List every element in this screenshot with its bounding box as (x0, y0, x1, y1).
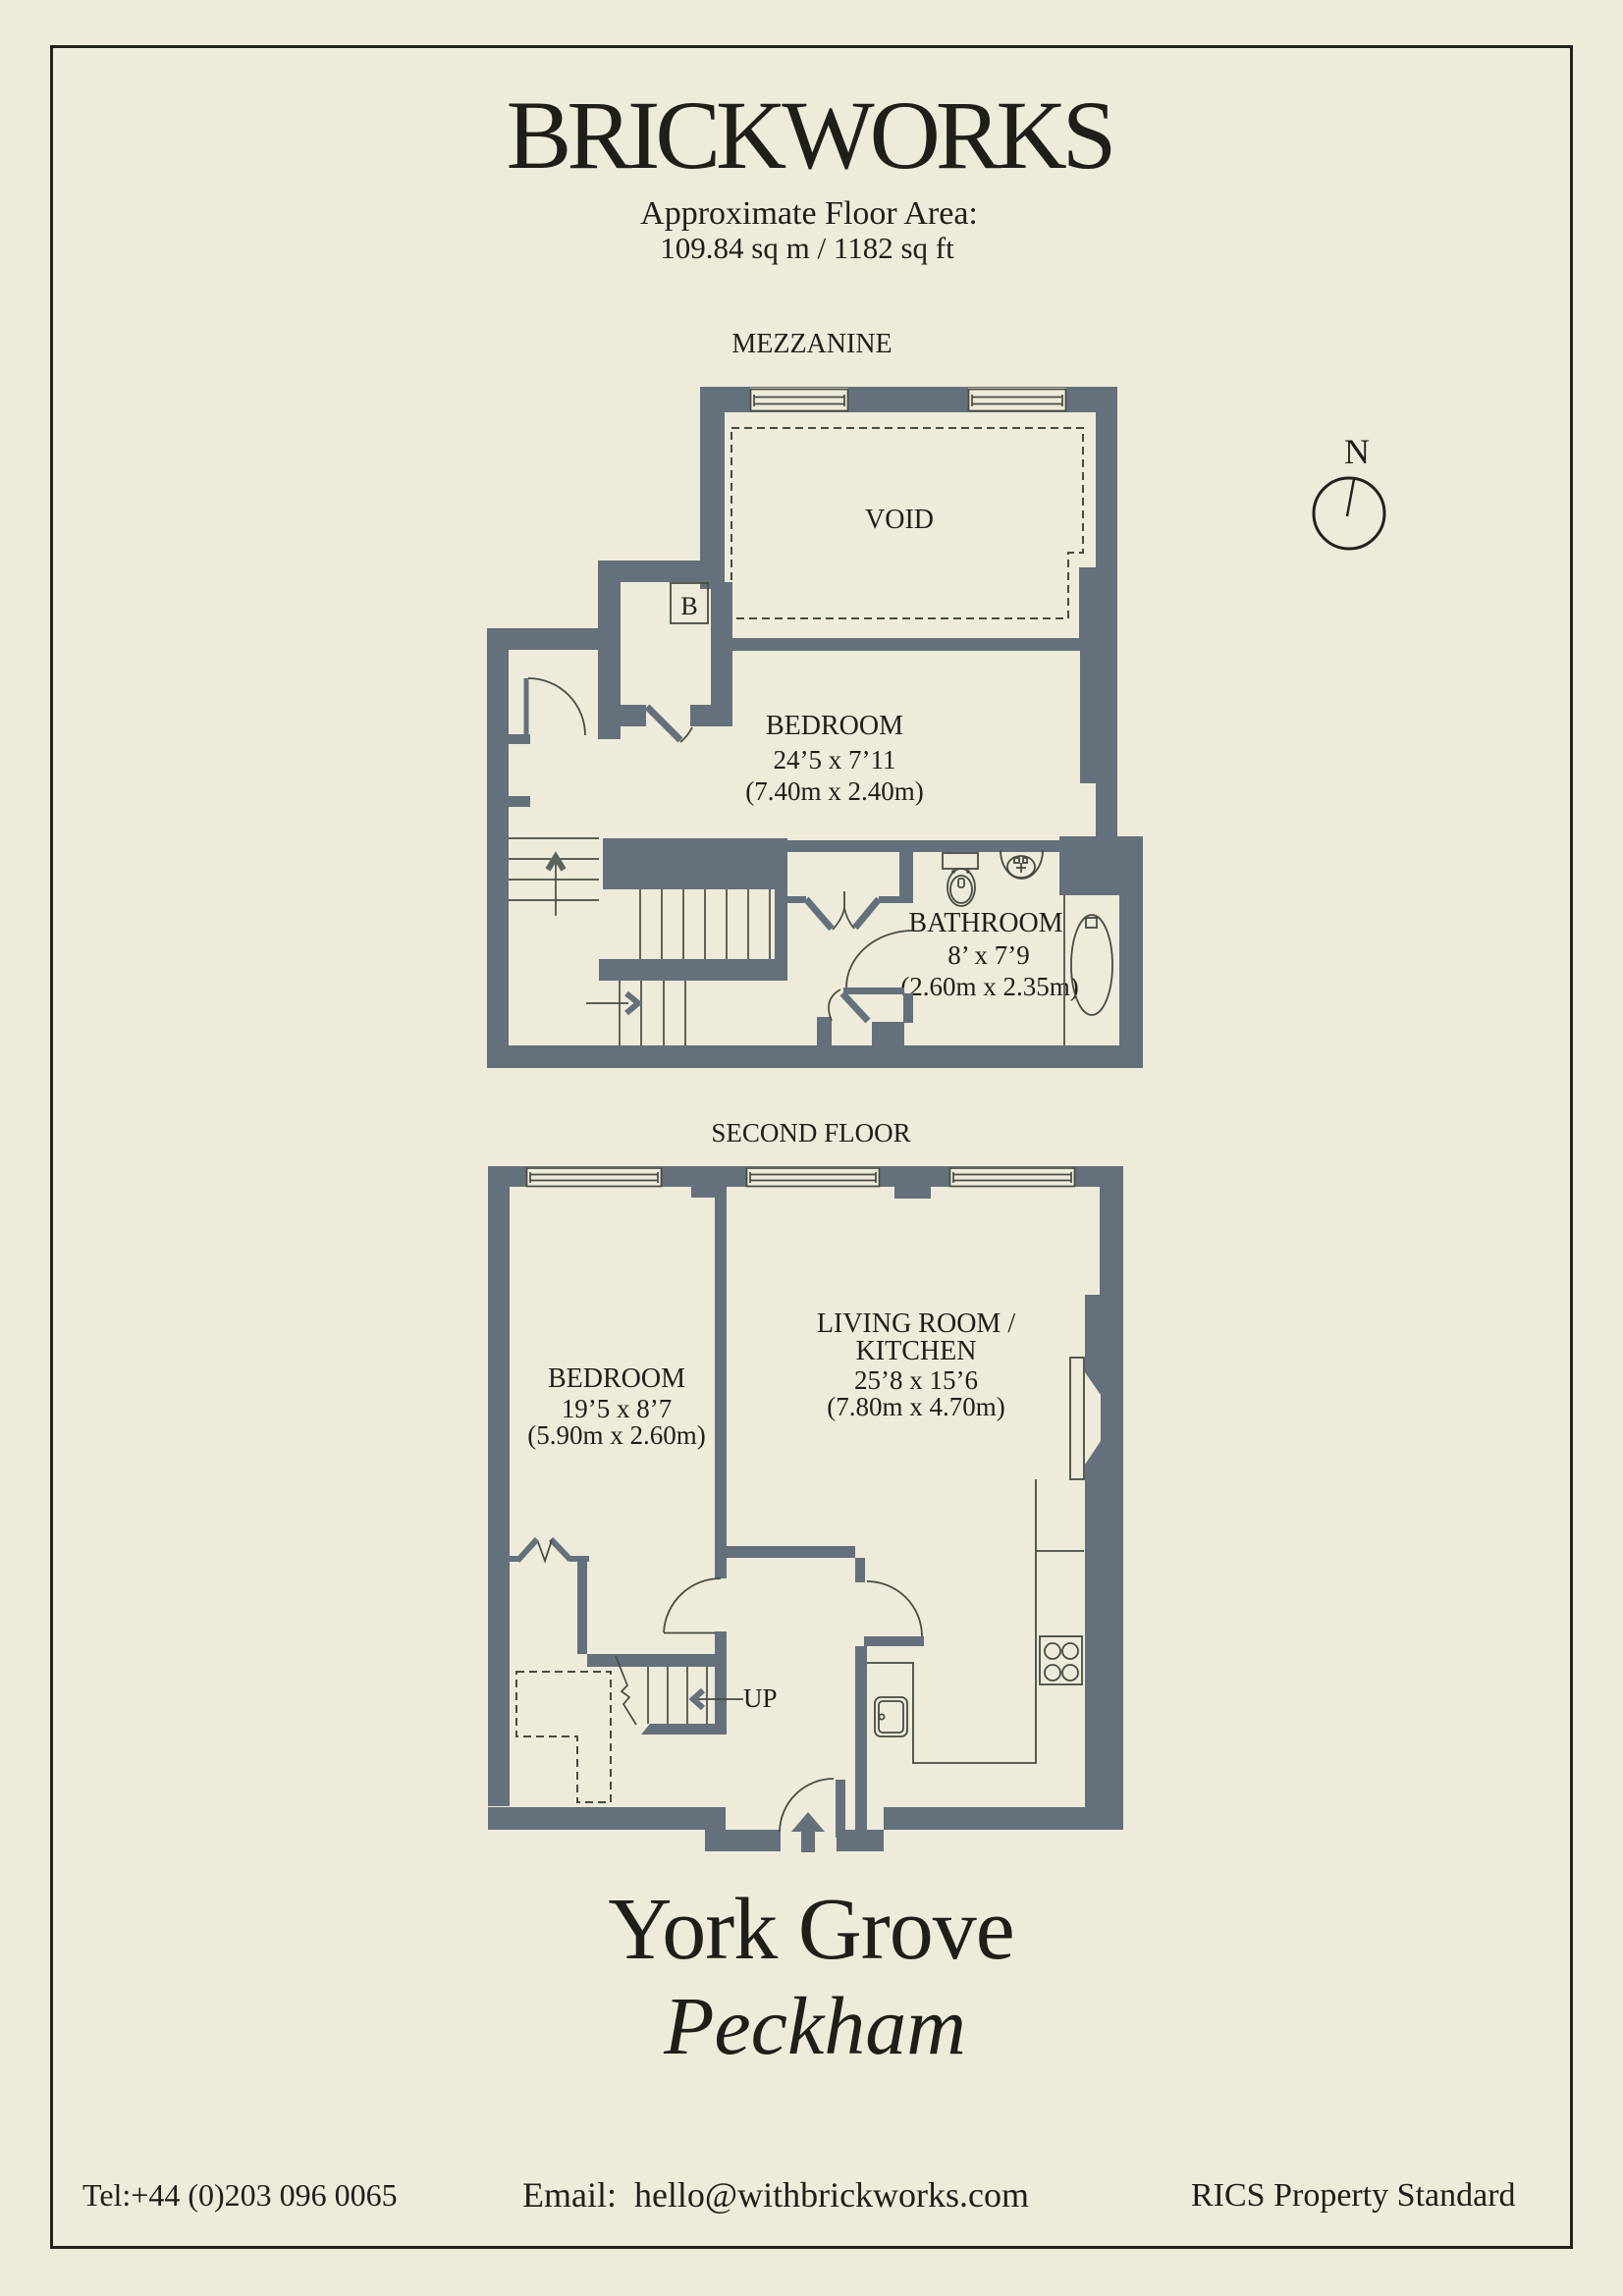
svg-text:B: B (680, 592, 697, 620)
